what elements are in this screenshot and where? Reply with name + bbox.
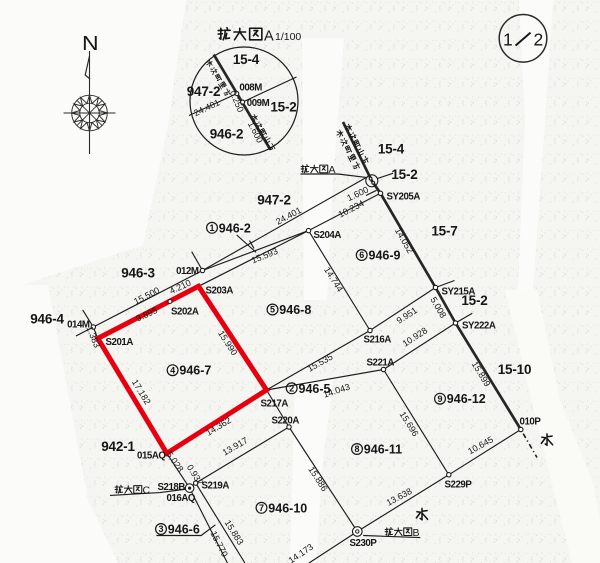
svg-text:1/100: 1/100 [275,31,301,43]
svg-text:015AQ: 015AQ [137,451,166,462]
svg-text:8: 8 [354,444,359,454]
svg-text:946-2: 946-2 [219,221,251,235]
svg-text:012M: 012M [176,266,199,277]
svg-text:5: 5 [270,305,275,315]
svg-text:15-4: 15-4 [378,142,405,157]
svg-text:S218B: S218B [158,482,186,493]
svg-text:2: 2 [289,384,294,394]
svg-text:S204A: S204A [314,230,342,241]
svg-text:A: A [264,29,274,45]
svg-text:946-3: 946-3 [121,266,155,281]
svg-text:946-7: 946-7 [179,364,211,378]
svg-text:15-4: 15-4 [233,52,260,67]
svg-text:1: 1 [503,29,513,49]
svg-text:A: A [329,164,336,176]
svg-text:S217A: S217A [261,399,289,410]
svg-text:S229P: S229P [445,480,473,491]
svg-text:S201A: S201A [106,337,134,348]
svg-text:6: 6 [359,250,364,260]
svg-text:S202A: S202A [171,307,199,318]
svg-text:947-2: 947-2 [187,84,221,99]
svg-text:008M: 008M [239,83,262,94]
svg-text:946-8: 946-8 [279,303,311,317]
svg-text:15-2: 15-2 [461,293,487,308]
svg-text:SY222A: SY222A [462,321,496,332]
svg-text:S216A: S216A [364,335,392,346]
svg-text:15-2: 15-2 [270,100,296,115]
svg-text:946-6: 946-6 [168,523,200,537]
svg-text:946-11: 946-11 [364,443,402,457]
svg-text:S221A: S221A [367,358,395,369]
svg-text:9: 9 [437,394,442,404]
svg-text:016AQ: 016AQ [167,493,196,504]
svg-text:947-2: 947-2 [257,193,291,208]
svg-text:2: 2 [534,29,544,49]
svg-text:946-12: 946-12 [447,392,486,406]
svg-text:S220A: S220A [272,416,300,427]
svg-text:N: N [82,31,99,54]
svg-text:009M: 009M [247,98,270,109]
svg-text:15-7: 15-7 [431,224,457,239]
svg-text:010P: 010P [520,417,542,428]
svg-text:3: 3 [158,524,163,534]
svg-text:1: 1 [209,223,214,233]
svg-text:15-2: 15-2 [391,167,417,182]
svg-text:7: 7 [259,503,264,513]
svg-text:946-9: 946-9 [369,249,401,263]
svg-text:B: B [413,527,420,539]
svg-text:S230P: S230P [350,538,378,549]
svg-text:4: 4 [170,365,175,375]
svg-text:S219A: S219A [202,481,230,492]
svg-text:946-4: 946-4 [30,312,64,327]
svg-text:SY205A: SY205A [387,192,421,203]
svg-text:15-10: 15-10 [498,362,532,377]
svg-text:942-1: 942-1 [101,439,135,454]
svg-text:946-2: 946-2 [210,127,244,142]
svg-text:C: C [143,485,151,497]
svg-text:946-10: 946-10 [268,501,307,515]
svg-text:S203A: S203A [206,286,234,297]
